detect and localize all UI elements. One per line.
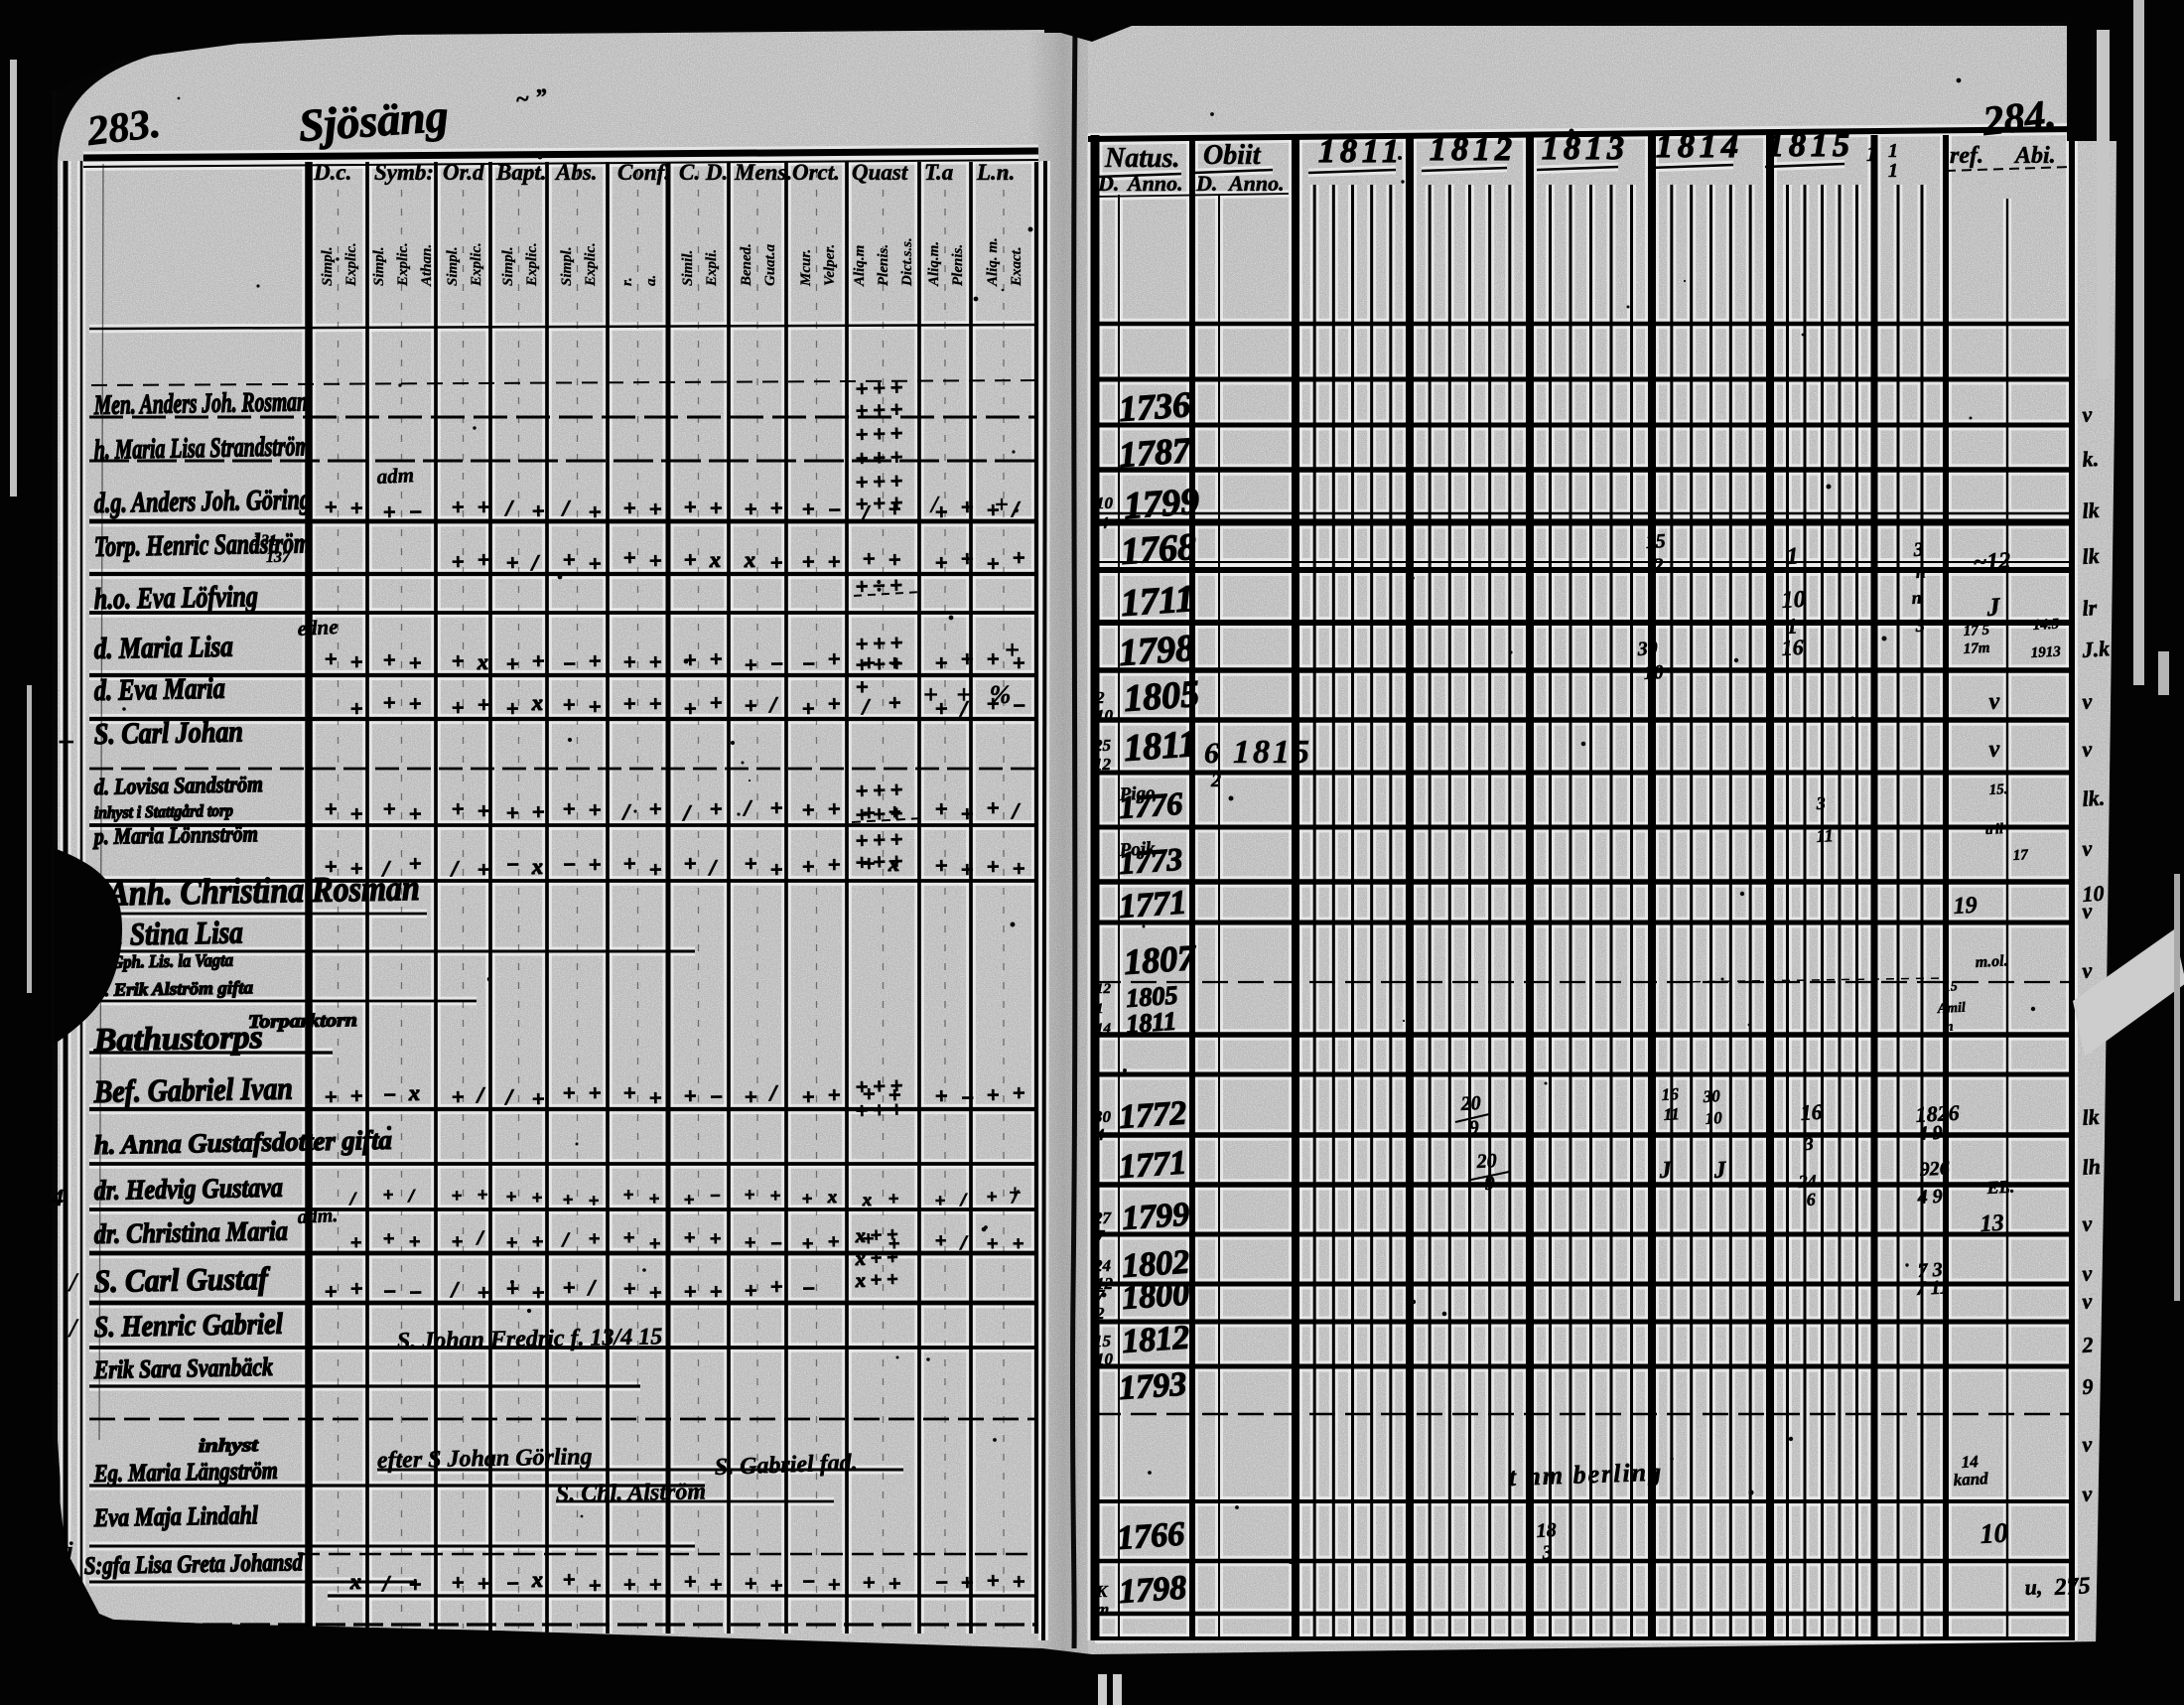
svg-text:+: + [452,1231,464,1253]
svg-text:30: 30 [1636,638,1658,660]
svg-text:9: 9 [1468,1116,1479,1138]
svg-text:t hm berling: t hm berling [1508,1458,1663,1492]
svg-text:+: + [506,1187,517,1207]
svg-text:+: + [961,801,974,826]
svg-text:17: 17 [2012,847,2028,864]
svg-text:−: − [802,1276,816,1301]
svg-text:+: + [828,852,841,877]
svg-text:x: x [477,649,488,674]
svg-text:Or.d: Or.d [443,160,484,185]
svg-text:+: + [649,548,662,573]
svg-text:+: + [649,1280,662,1305]
svg-text:+: + [623,851,636,876]
svg-text:+: + [452,1186,463,1206]
svg-text:+: + [684,1227,696,1249]
svg-text:9: 9 [1484,1172,1495,1194]
svg-text:v: v [2082,957,2094,983]
svg-text:1805: 1805 [1123,673,1201,720]
svg-text:+: + [1013,1080,1025,1105]
svg-text:+: + [987,1187,998,1207]
svg-text:2: 2 [2081,1332,2095,1357]
svg-text:Aliq. m.: Aliq. m. [985,237,1001,287]
svg-text:Velper.: Velper. [822,244,838,286]
svg-text:+÷+: +÷+ [855,572,907,599]
svg-text:r.: r. [619,277,635,286]
svg-text:k.: k. [2082,446,2100,472]
svg-text:+: + [409,1231,421,1253]
svg-text:+: + [589,1080,602,1105]
svg-text:g. Anh. Christina Rosman: g. Anh. Christina Rosman [76,868,421,914]
svg-text:Sjösäng: Sjösäng [297,90,450,151]
svg-text:Abs.: Abs. [554,160,598,185]
svg-text:v: v [2082,1288,2094,1314]
svg-text:d. Lovisa Sandström: d. Lovisa Sandström [94,772,263,799]
svg-text:3: 3 [1914,616,1925,636]
svg-text:+: + [828,646,841,671]
svg-text:+: + [649,1572,662,1597]
svg-text:+: + [863,1570,876,1595]
svg-text:+: + [649,1233,661,1255]
svg-text:lr: lr [2082,595,2099,621]
svg-text:+: + [1013,1233,1024,1255]
svg-text:adm: adm [376,463,415,489]
svg-text:Athan.: Athan. [419,244,435,287]
svg-text:1772: 1772 [1118,1094,1187,1136]
svg-text:+: + [828,1572,841,1597]
svg-text:1771: 1771 [1118,884,1187,925]
svg-text:+: + [409,1572,422,1597]
svg-text:~ ”: ~ ” [514,84,548,113]
svg-text:v: v [1988,688,2000,715]
svg-text:+: + [478,857,490,882]
svg-text:1: 1 [1888,140,1898,162]
svg-text:tril: tril [1984,821,2004,838]
svg-text:x++: x++ [854,1268,903,1292]
svg-text:+: + [802,1189,813,1208]
svg-text:+: + [623,691,636,716]
svg-text:edne: edne [297,615,339,640]
svg-text:+: + [623,545,636,570]
svg-text:+: + [506,1232,518,1254]
svg-text:+: + [623,496,636,520]
svg-text:1812: 1812 [1430,131,1517,168]
svg-text:Abi.: Abi. [2013,143,2056,169]
svg-text:+: + [383,499,396,524]
svg-text:1811: 1811 [1123,723,1199,770]
svg-text:+: + [770,857,783,882]
svg-text:m: m [1096,1600,1109,1619]
svg-text:+: + [325,796,338,821]
svg-text:11: 11 [1663,1104,1680,1124]
svg-text:+++: +++ [855,420,907,447]
svg-text:4: 4 [51,1186,64,1211]
svg-text:L.n.: L.n. [976,160,1015,185]
svg-text:2: 2 [1095,688,1105,707]
svg-text:10: 10 [1096,494,1114,512]
svg-text:1813: 1813 [1542,130,1629,167]
svg-text:+: + [935,550,948,575]
svg-text:−: − [409,1280,423,1305]
svg-text:+: + [452,796,465,821]
svg-text:−: − [802,651,816,676]
svg-text:+: + [710,1572,723,1597]
svg-text:1: 1 [1866,141,1877,166]
svg-text:1736: 1736 [1118,384,1192,429]
svg-text:+++: +++ [855,848,907,875]
svg-text:Simpl.: Simpl. [371,246,387,286]
svg-text:−: − [563,852,577,877]
svg-text:−: − [383,1279,397,1304]
svg-text:+: + [745,497,757,521]
svg-text:+++: +++ [855,490,907,516]
svg-text:h.o. Eva Löfving: h.o. Eva Löfving [94,580,259,616]
svg-text:Exact.: Exact. [1009,246,1024,287]
svg-text:+: + [710,1228,722,1250]
svg-text:+: + [350,649,363,674]
svg-text:+: + [770,550,783,575]
svg-text:+: + [828,796,841,821]
svg-text:1799: 1799 [1123,481,1201,527]
svg-text:+: + [935,1191,946,1210]
svg-text:+: + [350,696,363,721]
svg-text:Quast: Quast [852,160,908,185]
svg-text:+: + [802,696,815,721]
svg-text:4 9: 4 9 [1916,1186,1943,1208]
svg-text:+: + [770,1186,781,1206]
svg-text:+: + [649,649,662,674]
svg-text:−: − [506,1571,520,1596]
svg-text:1807: 1807 [1123,937,1199,982]
svg-text:D.: D. [1195,171,1217,196]
svg-text:S. Carl Gustaf: S. Carl Gustaf [93,1260,271,1299]
svg-text:kand: kand [1953,1469,1988,1490]
svg-text:+: + [935,650,948,675]
svg-text:13: 13 [1979,1210,2004,1237]
svg-text:d. Eva Maria: d. Eva Maria [94,672,226,707]
svg-text:+: + [710,1279,723,1304]
svg-text:+: + [623,1080,636,1105]
svg-text:x: x [862,1190,872,1209]
svg-text:+++: +++ [855,1096,907,1123]
svg-text:6: 6 [1806,1190,1816,1209]
svg-text:14: 14 [1096,1021,1112,1037]
svg-text:+: + [452,549,465,574]
svg-text:+: + [961,546,974,571]
svg-text:x: x [531,1567,543,1592]
svg-text:4: 4 [1095,1125,1105,1144]
svg-text:137: 137 [266,549,291,566]
svg-text:v: v [2082,1481,2094,1506]
svg-text:adm.: adm. [297,1205,339,1228]
svg-text:+: + [828,1082,841,1107]
svg-text:+: + [684,1083,697,1108]
svg-text:+: + [589,1228,601,1250]
svg-text:+ + %: + + % [923,680,1017,709]
svg-text:+: + [649,1085,662,1110]
svg-text:+: + [563,1190,574,1209]
svg-text:u,: u, [2024,1574,2043,1600]
svg-text:Explic.: Explic. [343,242,359,287]
svg-text:+: + [563,1567,576,1592]
svg-text:Eva Maja Lindahl: Eva Maja Lindahl [93,1500,259,1532]
svg-text:T.a: T.a [924,160,953,185]
svg-text:+: + [350,856,363,881]
svg-text:+: + [684,495,697,519]
svg-text:x: x [531,690,543,715]
svg-text:Pigo: Pigo [1118,782,1156,805]
svg-text:inhyst: inhyst [199,1435,259,1457]
svg-text:Bened.: Bened. [739,243,754,287]
svg-text:+: + [1013,545,1025,570]
svg-text:11: 11 [1816,825,1834,846]
svg-text:+: + [745,1084,757,1109]
svg-text:efter S Johan Görling: efter S Johan Görling [377,1444,593,1474]
svg-text:+: + [987,1082,1000,1107]
svg-text:+: + [987,1568,1000,1593]
svg-text:+: + [506,1276,519,1301]
svg-text:+: + [710,796,723,821]
svg-text:1811: 1811 [1318,133,1404,170]
svg-text:J: J [1985,592,2001,622]
svg-text:+: + [987,551,1000,576]
svg-text:dr. Christina Maria: dr. Christina Maria [94,1216,289,1250]
svg-text:+: + [935,853,948,878]
svg-text:7 11: 7 11 [1915,1276,1950,1300]
svg-text:S. Johan Fredric f. 13/4 15: S. Johan Fredric f. 13/4 15 [397,1324,663,1354]
svg-text:Natus.: Natus. [1104,143,1179,174]
svg-text:h. Maria Lisa Strandström: h. Maria Lisa Strandström [94,431,312,466]
svg-text:+: + [745,693,757,718]
svg-text:+: + [325,646,338,671]
svg-text:9: 9 [2082,1373,2095,1399]
svg-text:+: + [563,1080,576,1105]
svg-text:Simpl.: Simpl. [500,246,516,286]
svg-text:+: + [589,1573,602,1598]
svg-text:+: + [383,1185,394,1205]
svg-text:+++: +++ [855,650,907,677]
svg-text:+: + [987,854,1000,879]
svg-text:+: + [684,547,697,572]
svg-text:Bef. Gabriel Ivan: Bef. Gabriel Ivan [93,1070,293,1110]
svg-text:+: + [770,1274,783,1299]
svg-text:+: + [506,651,519,676]
svg-text:+: + [383,690,396,715]
svg-text:EL.: EL. [1985,1177,2015,1198]
svg-text:Anno.: Anno. [1227,171,1285,196]
svg-text:+: + [532,1280,545,1305]
svg-text:~12: ~12 [1973,548,2011,576]
svg-text:10: 10 [1979,1518,2009,1550]
svg-text:Obiit: Obiit [1203,140,1262,171]
svg-text:Mens.: Mens. [734,160,792,185]
svg-text:+: + [409,650,422,675]
svg-text:+: + [1005,636,1020,664]
svg-text:17m: 17m [1963,640,1989,657]
svg-text:+: + [649,497,662,521]
svg-text:+ .: + . [995,493,1021,518]
svg-text:lh: lh [2082,1154,2102,1180]
svg-text:lk: lk [2082,1104,2101,1130]
svg-text:J.k: J.k [2081,636,2111,662]
svg-text:+: + [452,695,465,720]
svg-text:+: + [409,851,422,876]
svg-text:1771: 1771 [1118,1144,1187,1186]
svg-text:v: v [2082,835,2094,861]
svg-text:Anno.: Anno. [1126,171,1183,196]
svg-text:+: + [684,851,697,876]
svg-text:+++: +++ [855,800,907,827]
svg-text:+: + [623,1185,634,1205]
svg-text:24: 24 [1093,1256,1111,1275]
svg-text:Torparktorn: Torparktorn [248,1010,357,1033]
svg-text:+: + [623,1276,636,1301]
svg-text:+: + [710,496,723,520]
svg-text:19: 19 [1953,893,1978,920]
svg-text:+: + [961,646,974,671]
svg-text:+: + [935,796,948,821]
svg-text:+: + [770,795,783,820]
svg-text:+: + [684,1569,697,1594]
svg-text:1793: 1793 [1118,1365,1187,1407]
svg-text:+: + [325,1084,338,1109]
svg-text:15: 15 [1094,1332,1112,1350]
svg-text:Erik Sara Svanbäck: Erik Sara Svanbäck [93,1352,273,1384]
svg-text:+: + [563,1275,576,1300]
svg-text:10: 10 [1096,706,1114,725]
svg-text:x: x [709,547,721,572]
svg-text:+: + [863,546,876,571]
svg-text:S. Gabriel fad.: S. Gabriel fad. [714,1450,858,1481]
svg-text:v: v [2082,401,2094,427]
svg-text:+: + [802,1084,815,1109]
svg-text:Aliq.m: Aliq.m [852,245,868,287]
svg-text:Eg. Maria Längström: Eg. Maria Längström [93,1458,278,1488]
svg-text:v: v [2082,1210,2094,1236]
svg-text:ref.: ref. [1950,143,1983,169]
svg-text:1814: 1814 [1656,128,1743,165]
svg-text:+: + [532,799,545,824]
svg-text:+: + [684,696,697,721]
svg-text:20: 20 [1459,1092,1481,1115]
svg-text:+: + [532,1188,543,1208]
svg-text:D.: D. [1097,171,1119,196]
svg-text:x++: x++ [854,1246,903,1270]
svg-text:+: + [563,796,576,821]
svg-text:+: + [325,1279,338,1304]
svg-text:+: + [710,690,723,715]
svg-text:+: + [802,797,815,822]
svg-text:+: + [532,648,545,673]
svg-text:1798: 1798 [1118,628,1196,674]
svg-text:−: − [961,1085,975,1110]
svg-text:lk: lk [2082,497,2101,523]
svg-text:25: 25 [1093,736,1112,755]
svg-text:+: + [770,496,783,520]
svg-text:lk.: lk. [2082,784,2106,811]
svg-text:+: + [987,795,1000,820]
svg-text:15: 15 [1645,530,1666,553]
svg-text:10: 10 [1096,1350,1114,1368]
svg-text:17 5: 17 5 [1963,623,1990,639]
svg-text:Mcur.: Mcur. [798,249,814,287]
svg-text:x: x [531,854,543,879]
svg-text:dr. Hedvig Gustava: dr. Hedvig Gustava [94,1173,284,1207]
svg-text:1812: 1812 [1121,1319,1190,1360]
svg-text:Simpl.: Simpl. [445,246,461,286]
svg-text:+: + [961,495,974,519]
svg-text:S. Erik Alström gifta: S. Erik Alström gifta [94,977,253,1000]
svg-text:Explic.: Explic. [469,242,484,287]
svg-text:+: + [623,649,636,674]
svg-text:3: 3 [1803,1134,1814,1154]
svg-text:+++: +++ [855,444,907,471]
svg-text:+: + [888,690,901,715]
svg-text:+: + [589,1191,600,1210]
svg-text:Plenis.: Plenis. [950,244,966,286]
svg-text:+: + [745,1278,757,1303]
svg-text:Plenis.: Plenis. [876,244,891,286]
svg-text:+: + [623,1227,635,1249]
svg-text:−: − [770,651,784,676]
svg-text:+: + [649,1189,660,1208]
svg-text:+: + [325,854,338,879]
svg-text:J: J [1712,1157,1727,1184]
svg-text:+: + [770,1573,783,1598]
svg-text:+: + [684,1279,697,1304]
svg-text:+: + [888,547,901,572]
svg-text:−: − [710,1186,721,1206]
svg-text:+: + [802,1233,814,1255]
svg-text:2: 2 [1210,770,1221,791]
svg-text:+: + [828,691,841,716]
svg-text:1800: 1800 [1121,1275,1190,1317]
svg-text:+: + [478,495,490,519]
svg-text:10: 10 [1643,661,1664,684]
svg-text:Aliq.m.: Aliq.m. [926,241,942,287]
svg-text:+: + [888,1189,899,1208]
svg-text:S. Carl Johan: S. Carl Johan [94,715,244,751]
svg-text:h. Anna Gustafsdotter gifta: h. Anna Gustafsdotter gifta [94,1125,392,1160]
svg-text:Guat.a: Guat.a [762,243,778,286]
svg-text:1: 1 [1096,1001,1104,1017]
svg-text:−: − [770,1233,783,1255]
svg-text:S:gfa Lisa Greta Johansd: S:gfa Lisa Greta Johansd [84,1549,304,1580]
svg-text:1811: 1811 [1125,1007,1176,1039]
svg-text:d.g. Anders Joh. Göring: d.g. Anders Joh. Göring [94,484,312,519]
svg-text:16: 16 [1781,635,1804,660]
svg-text:1815: 1815 [1767,127,1854,164]
svg-text:1766: 1766 [1116,1515,1185,1557]
svg-text:+: + [589,648,602,673]
svg-text:+: + [589,499,602,524]
svg-text:+: + [350,1276,363,1301]
svg-text:+: + [1013,856,1025,881]
svg-text:+: + [478,1280,490,1305]
svg-text:−: − [409,499,423,524]
svg-text:+: + [350,801,363,826]
svg-text:inhyst i Stattgård torp: inhyst i Stattgård torp [94,801,233,822]
svg-text:1768: 1768 [1120,526,1198,573]
svg-text:+++: +++ [855,1072,907,1099]
svg-text:+: + [589,694,602,719]
svg-text:+: + [745,652,757,677]
svg-text:+: + [987,646,1000,671]
svg-text:27: 27 [1093,1208,1113,1227]
svg-text:283.: 283. [84,100,164,155]
svg-text:x: x [408,1080,420,1105]
svg-text:1913: 1913 [2030,643,2061,661]
svg-text:Explic.: Explic. [583,242,599,287]
